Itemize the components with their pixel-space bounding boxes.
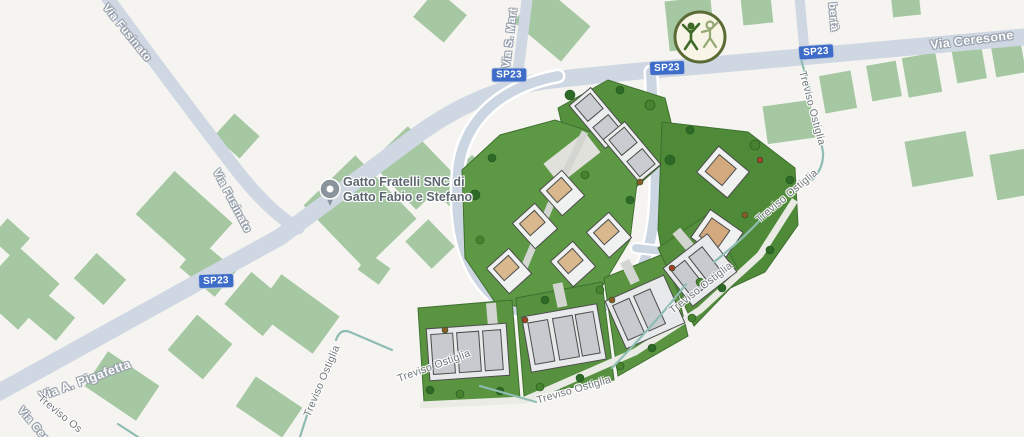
road-via-s-martino <box>517 0 528 80</box>
map-canvas[interactable]: SP23 SP23 SP23 SP23 Via Fusinato Via Fus… <box>0 0 1024 437</box>
road-via-liberta <box>799 0 805 57</box>
road-via-fusinato <box>102 0 298 228</box>
map-graphics <box>0 0 1024 437</box>
playground-icon[interactable] <box>675 12 725 62</box>
